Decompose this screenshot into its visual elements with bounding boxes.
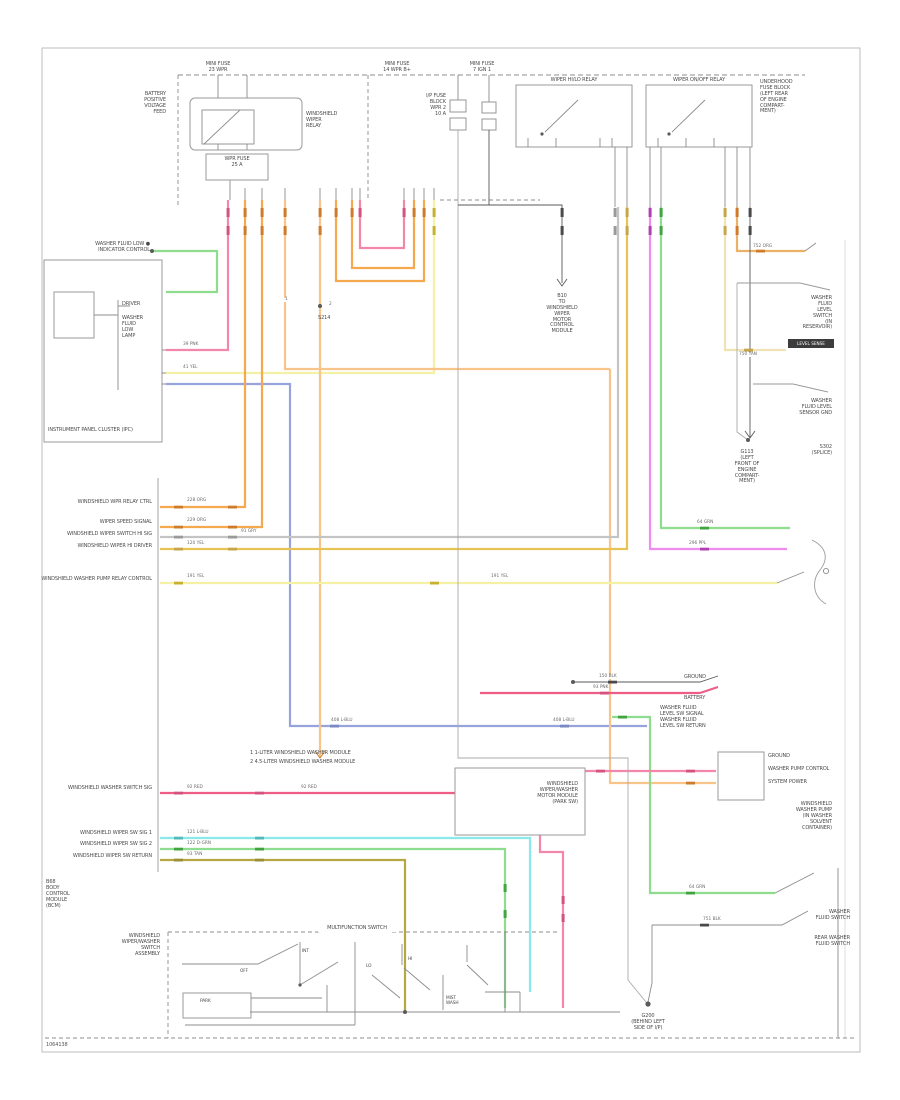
bcm-row3-label: WINDSHIELD WIPER SWITCH HI SIG (30, 532, 152, 538)
relay-drop-stubs (615, 147, 750, 207)
switch-top-label: MULTIFUNCTION SWITCH (318, 926, 396, 932)
pump-row1-label: GROUND (768, 754, 832, 760)
footnote-mark-2: 2 (328, 303, 333, 307)
level-switch-top (737, 283, 830, 290)
wire-gray-bottom-row (652, 911, 808, 925)
code-blu2: 408 L-BLU (552, 719, 576, 723)
code-tan1: 752 ORG (752, 245, 773, 249)
s214-label: S214 (318, 316, 358, 322)
code-yel: 41 YEL (182, 366, 199, 370)
ip-fuse-label: I/P FUSE BLOCK WPR 2 10 A (396, 94, 446, 118)
level-switch-row2 (753, 384, 828, 392)
tan-end-slant (805, 243, 816, 251)
switch-contact-2 (251, 985, 327, 1012)
bcm-label: B68 BODY CONTROL MODULE (BCM) (46, 880, 110, 909)
driver-label: DRIVER (122, 302, 158, 308)
footer-part-number: 1064138 (46, 1043, 106, 1049)
washer-fluid-low-label: WASHER FLUID LOW ● INDICATOR CONTROL (52, 242, 150, 254)
washer-pump-box (718, 752, 764, 800)
wire-orange-bcm2 (160, 200, 262, 527)
level-switch-gnd-run (737, 283, 748, 440)
fluid-switch-label: WASHER FLUID SWITCH (792, 910, 850, 922)
wire-green-level (612, 717, 775, 893)
fuse1-label: MINI FUSE 23 WPR (186, 62, 250, 74)
relay-left-label: BATTERY POSITIVE VOLTAGE FEED (106, 92, 166, 116)
wire-orange-bcm1 (160, 200, 245, 507)
wiper-motor-module-label: WINDSHIELD WIPER/WASHER MOTOR MODULE (PA… (466, 782, 578, 806)
ipc-box (44, 260, 162, 442)
switch-mist-label: MIST WASH (446, 996, 476, 1006)
wire-magenta (650, 207, 787, 549)
lamp-label: WASHER FLUID LOW LAMP (122, 316, 162, 340)
tick-stubs (245, 188, 434, 200)
code-mag: 296 PPL (688, 542, 707, 546)
switch-park-label: PARK (200, 999, 230, 1004)
level-switch-label: WASHER FLUID LEVEL SWITCH (IN RESERVOIR) (780, 296, 832, 331)
wire-blue-ipc (166, 384, 647, 726)
code-org2: 229 ORG (186, 519, 207, 523)
pink-row-end (700, 687, 718, 693)
g200-label: G200 (BEHIND LEFT SIDE OF I/P) (610, 1014, 686, 1032)
fuse2-a (482, 102, 496, 113)
wire-black-g113 (745, 207, 755, 438)
relay-box-1 (516, 85, 632, 147)
relay-box-2 (646, 85, 752, 147)
code-blu: 408 L-BLU (330, 719, 354, 723)
battery-row-label: BATTERY (684, 696, 744, 702)
code-blkR: 150 BLK (598, 675, 618, 679)
relay-pins-top (218, 75, 247, 98)
code-org1: 228 ORG (186, 499, 207, 503)
relay2-title: WIPER ON/OFF RELAY (646, 78, 752, 84)
code-pnk3: 92 RED (300, 786, 318, 790)
ipc-label: INSTRUMENT PANEL CLUSTER (IPC) (48, 428, 160, 434)
code-yel3: 191 YEL (490, 575, 509, 579)
b10-label: B10 TO WINDSHIELD WIPER MOTOR CONTROL MO… (514, 294, 610, 335)
code-gry: 91 GRY (240, 530, 258, 534)
fuse3-label: MINI FUSE 7 IGN 1 (452, 62, 512, 74)
wire-pink-u (360, 200, 404, 248)
level-sw-bottom (775, 868, 838, 1038)
rear-fluid-switch-label: REAR WASHER FLUID SWITCH (792, 936, 850, 948)
fuse2-b (482, 119, 496, 130)
bcm-row9-label: WINDSHIELD WIPER SW RETURN (36, 854, 152, 860)
code-cyn: 121 L-BLU (186, 831, 210, 835)
wiper-relay-box (190, 98, 302, 150)
wiper-washer-wiring-diagram: MINI FUSE 23 WPR MINI FUSE 14 WPR B+ MIN… (0, 0, 900, 1100)
bcm-row7-label: WINDSHIELD WIPER SW SIG 1 (40, 831, 152, 837)
bcm-row6-label: WINDSHIELD WASHER SWITCH SIG (40, 786, 152, 792)
bcm-row5-label: WINDSHIELD WASHER PUMP RELAY CONTROL (14, 577, 152, 583)
level-sensor-gnd-label: WASHER FLUID LEVEL SENSOR GND (776, 399, 832, 417)
underhood-fuse-block-label: UNDERHOOD FUSE BLOCK (LEFT REAR OF ENGIN… (760, 80, 826, 115)
wire-khaki (160, 860, 405, 1010)
ground-row-label: GROUND (684, 675, 744, 681)
code-grn1: 64 GRN (696, 521, 714, 525)
code-crm: 750 TAN (738, 353, 758, 357)
switch-hi-label: HI (408, 957, 428, 962)
bcm-row1-label: WINDSHIELD WPR RELAY CTRL (40, 500, 152, 506)
switch-off-label: OFF (240, 969, 262, 974)
inline-connector-ring (823, 568, 828, 573)
code-pnkR: 93 PNK (592, 686, 609, 690)
switch-box-dashed (168, 932, 560, 1038)
code-grn: 122 D-GRN (186, 842, 212, 846)
switch-assembly-label: WINDSHIELD WIPER/WASHER SWITCH ASSEMBLY (96, 934, 160, 958)
wire-pink-ipc (166, 200, 228, 350)
wire-gray-to-ground (648, 925, 652, 1002)
code-tan: 93 TAN (186, 853, 203, 857)
wire-yellow-ipc (166, 200, 434, 373)
wire-pink-switch (458, 816, 563, 1008)
yellow-end-slant (777, 572, 804, 583)
relay-sub-label: WPR FUSE 25 A (208, 157, 266, 169)
footnote-mark-1: 1 (284, 298, 289, 302)
switch-park-box (183, 993, 251, 1018)
fuse-feeds (458, 75, 489, 102)
fuse1-b (450, 118, 466, 130)
washer-level-rows-label: WASHER FLUID LEVEL SW SIGNAL WASHER FLUI… (660, 706, 764, 730)
code-pnk2: 92 RED (186, 786, 204, 790)
g113-label: G113 (LEFT FRONT OF ENGINE COMPART- MENT… (716, 450, 778, 485)
bcm-row4-label: WINDSHIELD WIPER HI DRIVER (36, 544, 152, 550)
code-grnB: 64 GRN (688, 886, 706, 890)
level-sense-bar: LEVEL SENSE (788, 339, 834, 348)
pump-row2-label: WASHER PUMP CONTROL (768, 767, 838, 773)
code-pnk: 39 PNK (182, 343, 199, 347)
splice-label: S302 (SPLICE) (776, 445, 832, 457)
footnote-2: 2 4.5-LITER WINDSHIELD WASHER MODULE (250, 760, 480, 766)
fuse2-label: MINI FUSE 14 WPR B+ (362, 62, 432, 74)
code-dyel: 120 YEL (186, 542, 205, 546)
switch-int-label: INT (302, 949, 324, 954)
wire-cream (725, 207, 786, 350)
bcm-row2-label: WIPER SPEED SIGNAL (40, 520, 152, 526)
wire-black-b10 (458, 130, 562, 283)
footnote-1: 1 1-LITER WINDSHIELD WASHER MODULE (250, 751, 480, 757)
colored-wires (152, 200, 805, 1010)
ipc-gauge-box (54, 292, 94, 338)
code-yel2: 191 YEL (186, 575, 205, 579)
fuse1-a (450, 100, 466, 112)
code-blk: 751 BLK (702, 918, 722, 922)
wire-amber (160, 207, 627, 549)
bcm-row8-label: WINDSHIELD WIPER SW SIG 2 (40, 842, 152, 848)
pump-row3-label: SYSTEM POWER (768, 780, 832, 786)
relay1-title: WIPER HI/LO RELAY (520, 78, 628, 84)
washer-pump-label: WINDSHIELD WASHER PUMP (IN WASHER SOLVEN… (752, 802, 832, 831)
switch-lo-label: LO (366, 964, 386, 969)
relay-right-label: WINDSHIELD WIPER RELAY (306, 112, 364, 130)
